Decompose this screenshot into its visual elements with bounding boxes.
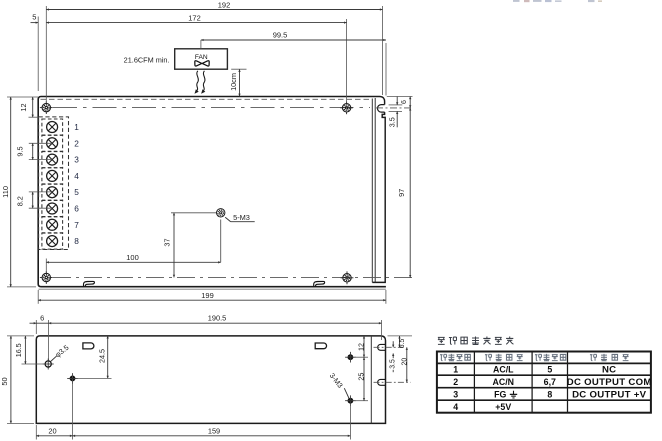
svg-text:199: 199 <box>201 291 214 300</box>
svg-text:8: 8 <box>74 236 79 246</box>
svg-text:10cm: 10cm <box>229 73 238 91</box>
svg-text:97: 97 <box>397 189 406 197</box>
svg-text:3-M3: 3-M3 <box>328 371 345 389</box>
svg-text:4: 4 <box>453 402 458 412</box>
svg-text:6: 6 <box>74 204 79 214</box>
svg-text:12: 12 <box>19 103 28 111</box>
svg-text:1: 1 <box>453 365 458 375</box>
svg-text:1: 1 <box>74 122 79 132</box>
svg-text:100: 100 <box>126 253 139 262</box>
svg-text:4: 4 <box>74 171 79 181</box>
svg-text:21.6CFM min.: 21.6CFM min. <box>124 56 170 65</box>
svg-text:3: 3 <box>453 389 458 399</box>
svg-text:20: 20 <box>401 358 408 366</box>
svg-text:6,7: 6,7 <box>544 377 556 387</box>
svg-text:190.5: 190.5 <box>208 314 227 323</box>
svg-text:FAN: FAN <box>195 54 208 61</box>
svg-text:AC/N: AC/N <box>492 377 514 387</box>
svg-text:110: 110 <box>1 186 10 198</box>
svg-text:8.2: 8.2 <box>15 196 24 206</box>
svg-text:172: 172 <box>188 13 201 22</box>
svg-text:FG: FG <box>494 389 506 399</box>
svg-text:20: 20 <box>48 426 56 435</box>
svg-text:5: 5 <box>74 187 79 197</box>
svg-text:24.5: 24.5 <box>97 349 106 363</box>
svg-text:3.5: 3.5 <box>388 117 397 127</box>
svg-text:+5V: +5V <box>495 402 511 412</box>
svg-text:159: 159 <box>208 426 220 435</box>
svg-text:7: 7 <box>74 220 79 230</box>
svg-text:DC OUTPUT +V: DC OUTPUT +V <box>572 389 647 400</box>
svg-text:5: 5 <box>32 13 36 22</box>
svg-text:8: 8 <box>547 389 552 399</box>
svg-text:6: 6 <box>40 314 44 323</box>
svg-text:9.5: 9.5 <box>15 146 24 156</box>
svg-text:50: 50 <box>0 377 9 385</box>
svg-text:6: 6 <box>399 100 408 104</box>
svg-text:2: 2 <box>74 138 79 148</box>
svg-text:37: 37 <box>163 238 172 246</box>
svg-text:192: 192 <box>218 0 231 9</box>
svg-text:25: 25 <box>356 373 365 381</box>
svg-text:2: 2 <box>453 377 458 387</box>
svg-text:AC/L: AC/L <box>493 365 514 375</box>
svg-text:3: 3 <box>74 155 79 165</box>
svg-text:φ3.5: φ3.5 <box>53 343 70 359</box>
svg-text:12: 12 <box>356 343 365 351</box>
svg-text:NC: NC <box>602 365 616 376</box>
svg-text:DC OUTPUT COM: DC OUTPUT COM <box>567 377 652 388</box>
svg-text:3.5: 3.5 <box>390 359 397 369</box>
svg-text:99.5: 99.5 <box>273 30 288 39</box>
svg-text:5-M3: 5-M3 <box>233 213 250 222</box>
svg-text:6.5: 6.5 <box>399 338 406 348</box>
svg-text:5: 5 <box>547 365 552 375</box>
svg-text:16.5: 16.5 <box>14 343 23 357</box>
